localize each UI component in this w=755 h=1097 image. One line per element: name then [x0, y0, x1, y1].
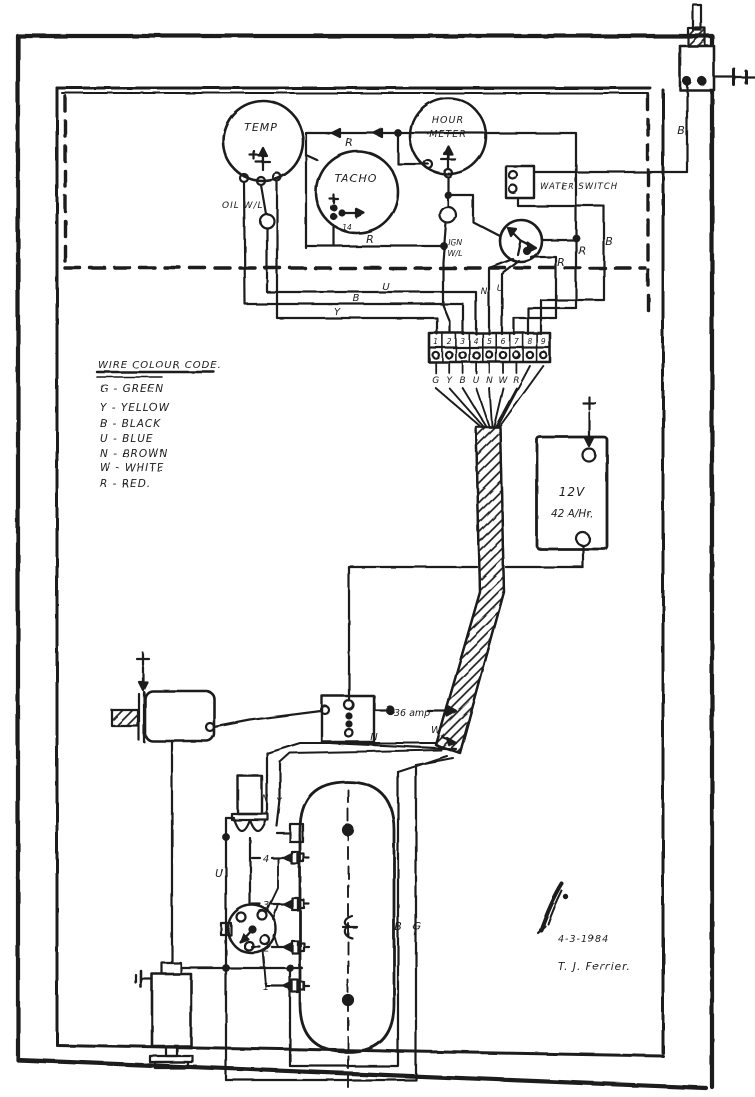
terminal-number: 4: [474, 337, 479, 346]
terminal-number: 7: [514, 337, 519, 346]
terminal-strip-wire-letters: G Y B U N W R: [432, 376, 519, 386]
wire-colour-legend: WIRE COLOUR CODE. G - GREEN Y - YELLOW B…: [98, 360, 222, 490]
outer-frame: [18, 36, 712, 1088]
engine-block: [300, 782, 394, 1092]
signature-flourish: [538, 884, 568, 933]
water-switch-label: WATER SWITCH: [540, 182, 618, 192]
diagram-canvas: TEMP TACHO HOUR METER 14 OIL W/L IGN W/L…: [0, 0, 755, 1097]
strip-wire-letter: W: [499, 376, 509, 386]
legend-item: Y - YELLOW: [100, 402, 170, 414]
legend-title: WIRE COLOUR CODE.: [98, 360, 222, 371]
terminal-number: 1: [433, 337, 438, 346]
legend-item: B - BLACK: [100, 418, 161, 430]
legend-item: G - GREEN: [100, 383, 164, 395]
battery-capacity: 42 A/Hr.: [551, 508, 593, 520]
terminal-number: 5: [487, 337, 492, 346]
wire-label-r-switch-1: R: [557, 256, 565, 269]
ign-warning-label-1: IGN: [448, 238, 463, 247]
dynamo-earth-icon: [137, 653, 149, 690]
wire-label-w-box: W: [431, 725, 442, 736]
battery-voltage: 12V: [559, 485, 585, 499]
legend-item: W - WHITE: [100, 462, 164, 474]
wire-label-n-coil: N: [262, 794, 269, 804]
hour-meter-label-2: METER: [429, 129, 467, 140]
temp-gauge: [223, 101, 303, 185]
signature-date: 4-3-1984: [558, 934, 609, 945]
terminal-number: 2: [447, 337, 452, 346]
wire-label-r-tacho: R: [366, 233, 374, 246]
legend-item: U - BLUE: [100, 433, 154, 445]
tacho-gauge-label: TACHO: [335, 172, 378, 185]
ignition-switch: [489, 220, 556, 334]
wire-label-n-strip: N: [481, 287, 488, 297]
wire-label-n-box: N: [370, 732, 378, 743]
tacho-gauge: [316, 151, 398, 233]
wire-label-b-engine: B: [394, 920, 402, 933]
temp-needle-icon: [250, 148, 270, 170]
wire-label-u-strip: U: [497, 284, 504, 294]
strip-wire-letter: Y: [446, 376, 453, 386]
wire-u-run: [223, 818, 229, 1080]
control-box: [321, 696, 456, 749]
plug-number-1: 1: [263, 982, 269, 993]
wire-label-g-engine: G: [413, 920, 422, 933]
engine-symbol-icon: [343, 916, 357, 938]
wire-label-y-coil: Y: [276, 797, 283, 807]
plug-number-2: 2: [263, 943, 269, 954]
wire-label-r-feed: R: [345, 136, 353, 149]
terminal-number: 9: [541, 337, 546, 346]
wire-label-r-switch-2: R: [578, 244, 586, 257]
fuel-pump: [136, 963, 302, 1068]
signature-name: T. J. Ferrier.: [558, 961, 631, 973]
strip-wire-letter: G: [432, 376, 439, 386]
legend-underline: [97, 372, 214, 377]
wiring-loom: [268, 427, 504, 772]
ignition-coil: [226, 753, 280, 905]
strip-wire-letter: U: [473, 376, 480, 386]
tacho-terminal-label: 14: [342, 223, 352, 232]
dynamo: [112, 653, 321, 963]
battery-earth-icon: [583, 397, 595, 446]
hour-meter-label-1: HOUR: [432, 115, 464, 126]
ammeter-arrow-icon: [428, 706, 456, 716]
legend-item: R - RED.: [100, 478, 151, 490]
terminal-number: 6: [501, 337, 506, 346]
temp-gauge-label: TEMP: [244, 121, 278, 134]
oil-warning-label: OIL W/L: [222, 201, 264, 211]
wire-label-b-bus: B: [353, 293, 360, 304]
ign-warning-label-2: W/L: [447, 249, 462, 258]
plug-number-4: 4: [263, 854, 269, 865]
tacho-terminals-icon: [330, 195, 364, 220]
wire-label-b-master: B: [677, 124, 685, 137]
strip-wire-letter: R: [513, 376, 519, 386]
strip-wire-letter: B: [460, 376, 466, 386]
legend-item: N - BROWN: [100, 448, 168, 460]
plug-number-3: 3: [263, 900, 269, 911]
ammeter-label: 36 amp: [394, 708, 430, 719]
terminal-strip-numbers: 1 2 3 4 5 6 7 8 9: [433, 337, 546, 346]
terminal-number: 8: [528, 337, 533, 346]
loom-fan-in: [436, 366, 544, 426]
wire-label-y-bus: Y: [334, 307, 341, 318]
wire-label-u-bus: U: [382, 282, 390, 293]
wire-colour-buses: [244, 181, 476, 334]
wire-label-u-dist: U: [215, 868, 223, 880]
strip-wire-letter: N: [486, 376, 493, 386]
hour-meter-needle-icon: [441, 146, 455, 168]
pump-earth-icon: [136, 971, 152, 987]
wire-label-b-switch: B: [605, 235, 613, 248]
master-switch: [680, 5, 755, 172]
scanned-wiring-diagram: TEMP TACHO HOUR METER 14 OIL W/L IGN W/L…: [0, 0, 755, 1097]
terminal-number: 3: [460, 337, 465, 346]
